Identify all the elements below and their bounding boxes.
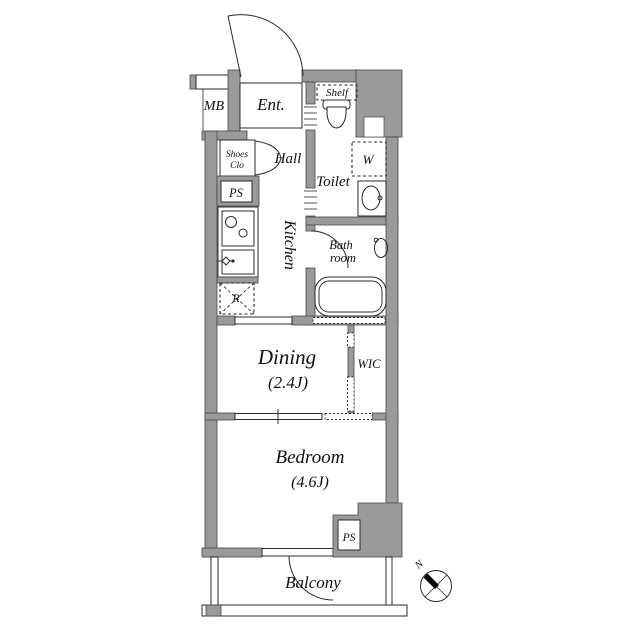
- wall-divider-2: [306, 130, 315, 188]
- wall-washroom-bath: [306, 217, 398, 225]
- mb-vent-window: [196, 75, 229, 89]
- floor-plan-page: MB Ent. Shelf Shoes Clo Hall PS Toilet W…: [0, 0, 640, 639]
- balcony-rail-post: [206, 605, 221, 616]
- kitchen-dining-opening: [235, 317, 292, 324]
- label-dining-area: (2.4J): [268, 373, 308, 392]
- label-dining: Dining: [257, 345, 316, 369]
- floor-plan-drawing: MB Ent. Shelf Shoes Clo Hall PS Toilet W…: [0, 0, 640, 639]
- bathtub-icon: [315, 277, 386, 316]
- wic-door-gap-2: [348, 377, 355, 411]
- label-bath-2: room: [330, 251, 356, 265]
- wall-dining-bedroom-left: [205, 413, 235, 420]
- label-shoes-2: Clo: [230, 161, 244, 171]
- compass-icon: [421, 571, 452, 602]
- wall-mb-ent: [228, 70, 240, 140]
- label-shoes-1: Shoes: [226, 150, 248, 160]
- label-shelf: Shelf: [326, 87, 350, 99]
- label-bedroom: Bedroom: [276, 447, 345, 468]
- toilet-door-ticks: [304, 107, 317, 125]
- label-toilet: Toilet: [316, 174, 350, 190]
- compass-needle: [426, 576, 438, 588]
- label-hall: Hall: [274, 151, 302, 167]
- label-wic: WIC: [358, 357, 382, 371]
- label-kitchen: Kitchen: [281, 219, 298, 270]
- wall-left: [205, 131, 217, 557]
- toilet-icon: [327, 107, 346, 128]
- label-mb: MB: [203, 99, 225, 114]
- wall-notch: [364, 117, 384, 137]
- label-ent: Ent.: [256, 95, 285, 114]
- label-washer: W: [363, 152, 375, 167]
- label-fridge: R: [231, 291, 240, 305]
- washroom-door-ticks: [304, 191, 317, 209]
- wall-top: [302, 70, 360, 82]
- entrance-door-leaf: [228, 16, 241, 77]
- bath-service-hatch: [313, 318, 385, 324]
- stove-icon: [222, 211, 254, 246]
- wic-bedroom-door: [325, 414, 372, 420]
- balcony-rail-left: [211, 557, 218, 606]
- label-balcony: Balcony: [285, 573, 341, 592]
- wall-divider-1: [306, 82, 315, 104]
- balcony-rail-bottom: [202, 605, 407, 616]
- label-bedroom-area: (4.6J): [291, 474, 329, 491]
- label-north: N: [412, 558, 426, 572]
- counter-end-wall: [217, 277, 258, 283]
- wall-right: [386, 137, 398, 515]
- balcony-sliding-window: [262, 549, 333, 557]
- balcony-rail-right: [386, 557, 392, 605]
- wall-bedroom-bottom: [202, 548, 262, 557]
- wall-kitchen-dining-left: [217, 316, 235, 325]
- label-bath-1: Bath: [329, 238, 353, 252]
- label-ps-lower: PS: [342, 532, 356, 544]
- label-ps-upper: PS: [228, 186, 244, 200]
- faucet-dot: [231, 259, 234, 262]
- wic-door-gap-1: [348, 333, 355, 347]
